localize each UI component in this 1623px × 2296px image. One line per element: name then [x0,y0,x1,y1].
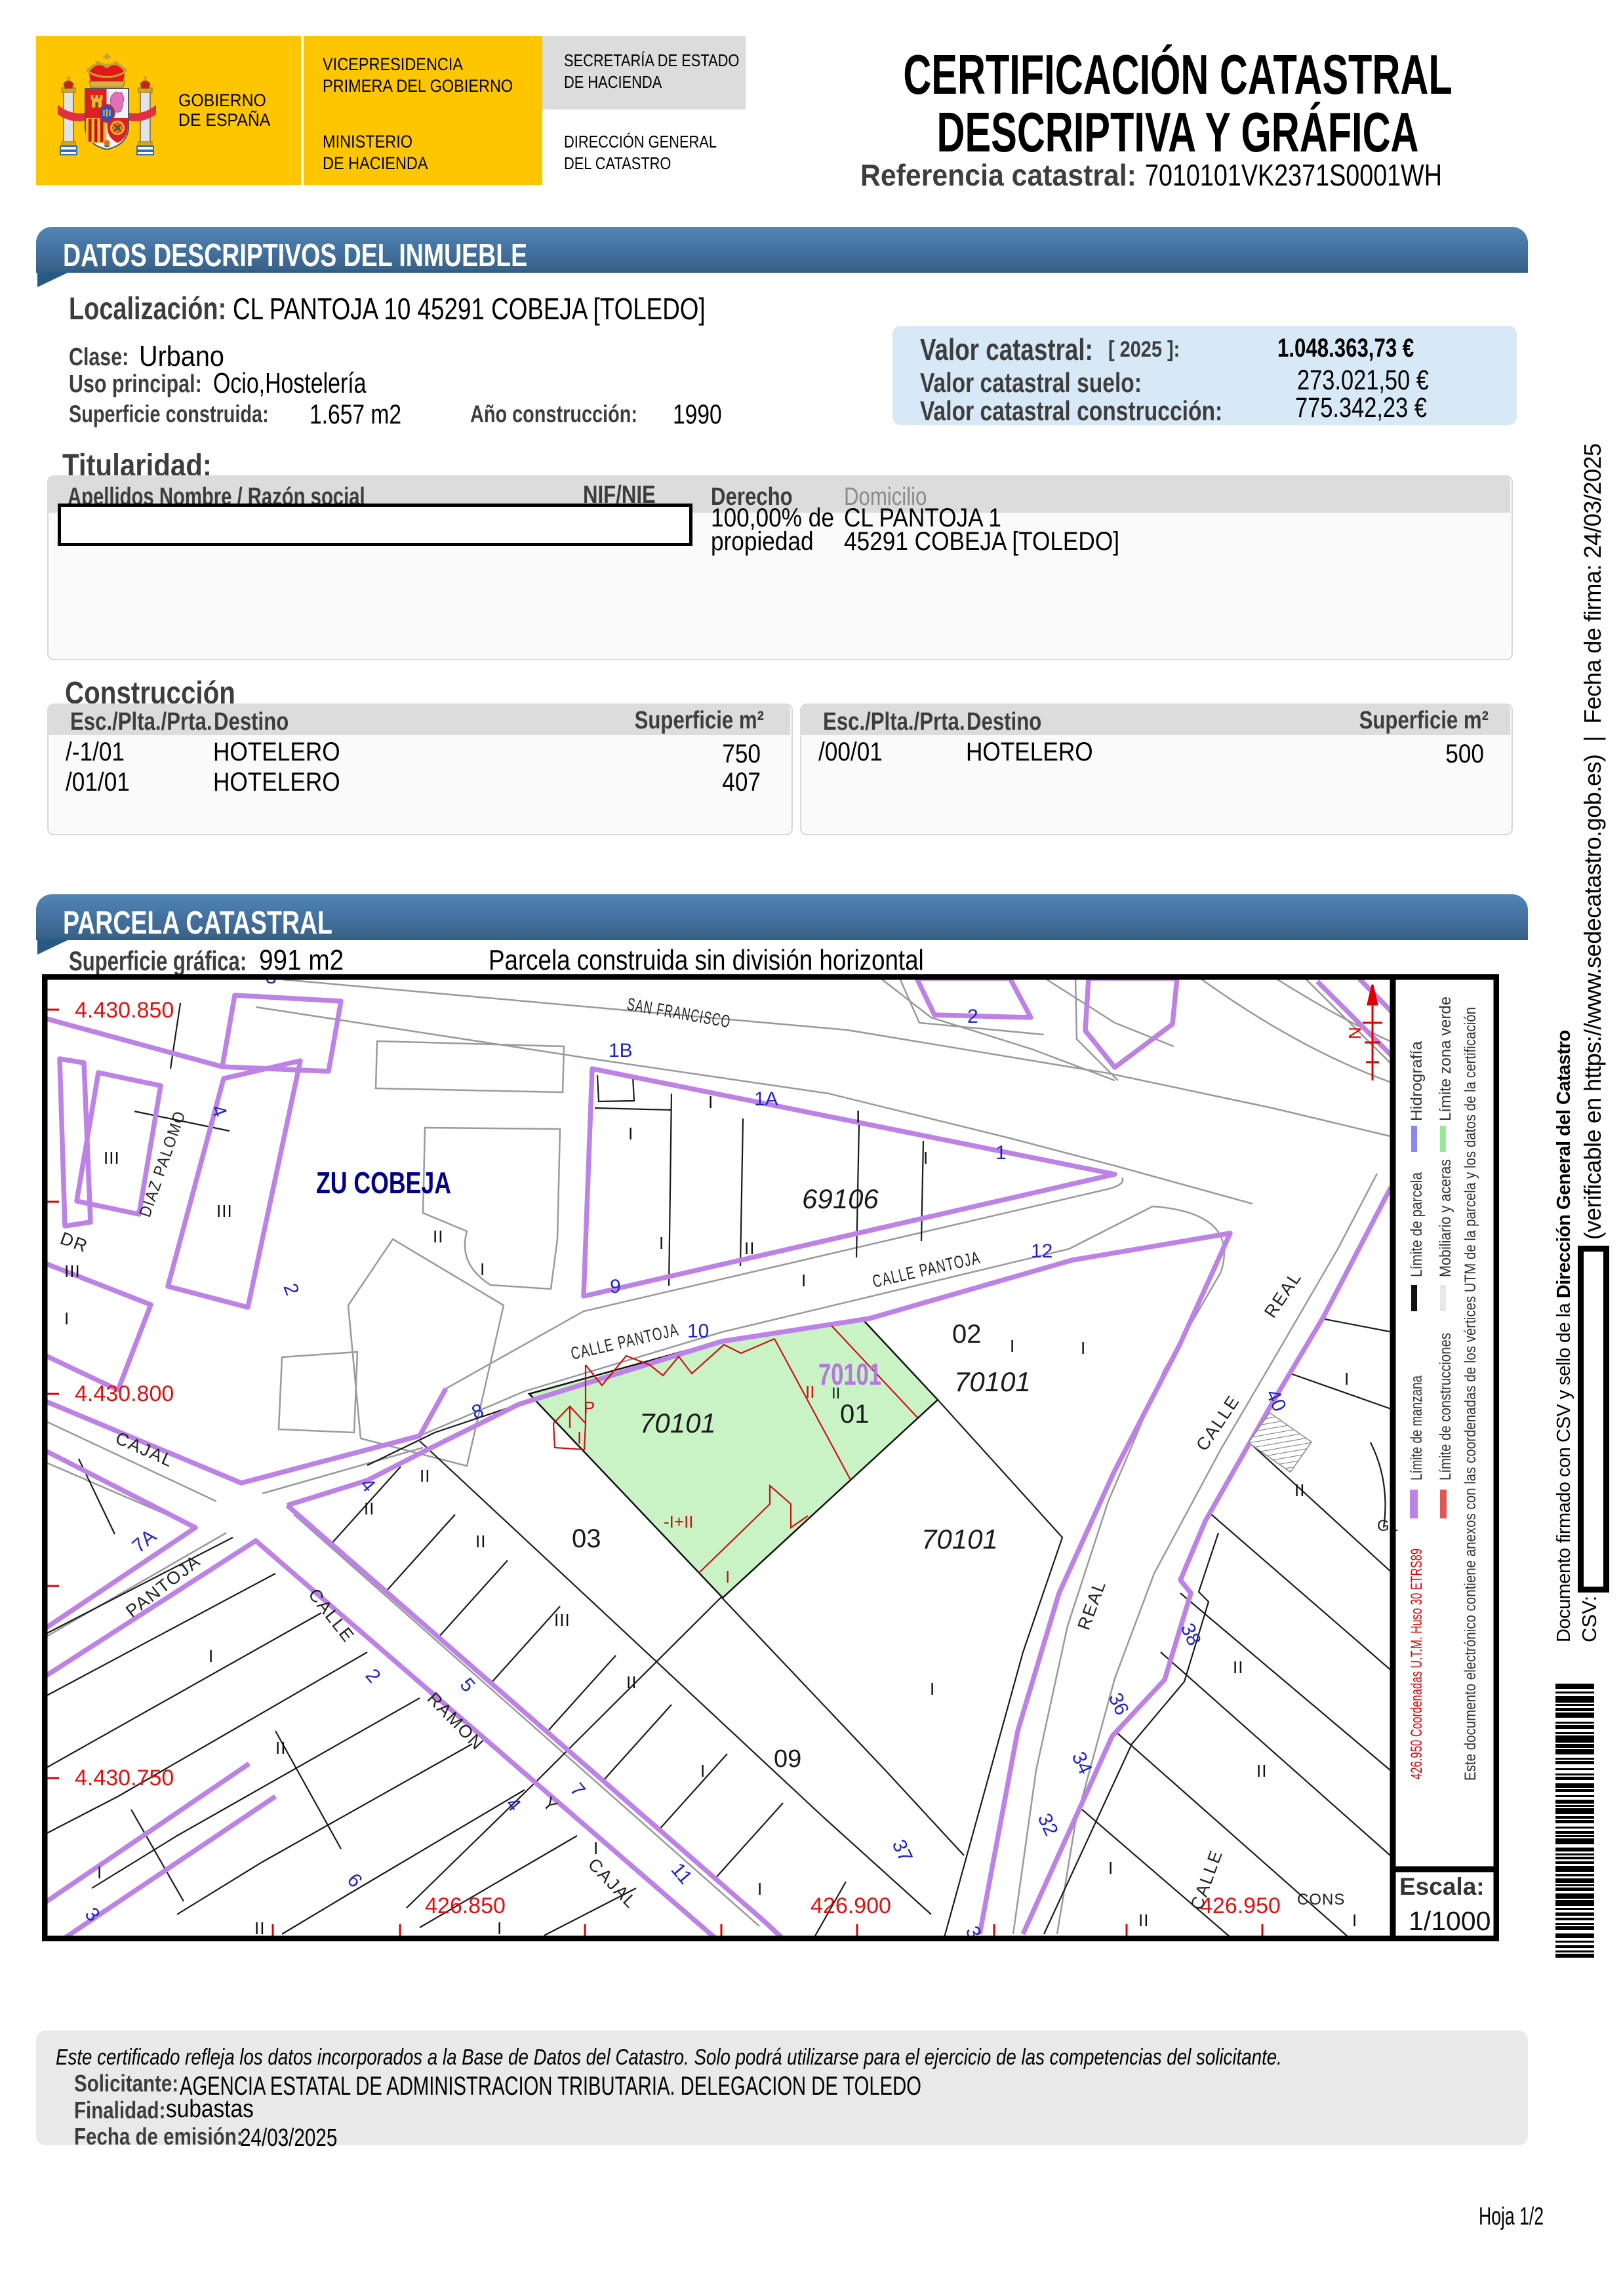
svg-text:1: 1 [995,1142,1007,1164]
svg-text:III: III [64,1261,81,1281]
svg-text:1A: 1A [754,1088,778,1110]
svg-text:I: I [1081,1338,1086,1358]
svg-text:426.850: 426.850 [425,1893,506,1918]
svg-text:4.430.800: 4.430.800 [75,1381,174,1406]
svg-text:Hidrografía: Hidrografía [1408,1040,1426,1121]
svg-text:I: I [577,1428,582,1448]
svg-text:4.430.850: 4.430.850 [75,998,174,1023]
svg-text:I: I [97,1863,102,1882]
svg-text:I: I [856,1107,861,1126]
svg-text:P: P [584,1398,595,1417]
svg-text:II: II [1294,1480,1305,1500]
svg-text:II: II [420,1466,430,1486]
svg-text:I: I [801,1271,807,1290]
svg-text:II: II [275,1738,286,1758]
svg-text:I: I [1344,1369,1350,1389]
svg-text:II: II [475,1532,486,1551]
svg-text:II: II [832,1385,840,1402]
svg-text:9: 9 [610,1276,621,1297]
svg-text:Límite de construcciones: Límite de construcciones [1437,1333,1454,1480]
svg-text:Mobiliario y aceras: Mobiliario y aceras [1437,1159,1454,1277]
svg-text:Escala:: Escala: [1399,1873,1485,1900]
svg-text:09: 09 [774,1745,801,1773]
svg-text:Límite de parcela: Límite de parcela [1408,1172,1426,1277]
svg-text:I: I [930,1679,935,1699]
svg-text:I: I [1010,1336,1015,1356]
svg-text:Este documento electrónico con: Este documento electrónico contiene anex… [1462,1007,1479,1781]
svg-text:12: 12 [1031,1240,1052,1262]
svg-text:426.950: 426.950 [1200,1893,1281,1918]
svg-text:70101: 70101 [921,1524,998,1554]
svg-text:II: II [1233,1657,1243,1677]
svg-text:I: I [628,1124,633,1143]
svg-text:I: I [923,1148,929,1168]
svg-text:-I+II: -I+II [664,1512,694,1532]
svg-text:II: II [364,1499,374,1518]
svg-text:I: I [593,1838,599,1858]
svg-text:10: 10 [687,1320,709,1342]
svg-text:70101: 70101 [954,1366,1031,1397]
svg-text:I: I [209,1646,214,1666]
svg-text:I: I [64,1309,70,1328]
svg-text:I: I [497,1918,502,1938]
svg-text:1/1000: 1/1000 [1409,1906,1491,1936]
svg-text:02: 02 [952,1320,982,1349]
svg-text:CONS: CONS [1297,1891,1345,1909]
svg-text:I: I [700,1761,706,1781]
svg-text:2: 2 [967,1006,978,1027]
svg-text:Límite de manzana: Límite de manzana [1408,1375,1426,1480]
svg-text:4.430.750: 4.430.750 [75,1766,174,1791]
svg-text:I: I [1352,1910,1357,1930]
svg-text:I: I [480,1259,485,1279]
svg-text:III: III [104,1148,120,1168]
svg-text:II: II [1138,1910,1149,1930]
svg-text:426.950 Coordenadas U.T.M. Hus: 426.950 Coordenadas U.T.M. Huso 30 ETRS8… [1408,1549,1426,1779]
svg-text:I: I [725,1567,730,1587]
svg-text:03: 03 [572,1524,601,1553]
svg-text:I: I [757,1879,763,1899]
svg-text:01: 01 [840,1400,870,1429]
svg-text:I: I [1108,1858,1113,1878]
svg-text:III: III [216,1201,233,1221]
svg-text:1B: 1B [609,1040,633,1061]
svg-text:II: II [744,1238,755,1258]
svg-text:426.900: 426.900 [811,1893,891,1918]
svg-text:II: II [254,1918,265,1938]
svg-text:I: I [659,1233,664,1253]
svg-text:II: II [433,1227,443,1246]
svg-text:69106: 69106 [802,1183,879,1214]
svg-text:70101: 70101 [818,1357,881,1391]
svg-text:I: I [708,1092,713,1112]
svg-text:II: II [626,1673,637,1692]
svg-text:II: II [1256,1761,1267,1781]
svg-text:ZU COBEJA: ZU COBEJA [316,1166,451,1200]
svg-text:N: N [1345,1027,1365,1039]
svg-text:III: III [554,1610,571,1630]
svg-text:70101: 70101 [639,1408,716,1438]
svg-text:II: II [805,1382,814,1402]
svg-text:Límite zona verde: Límite zona verde [1437,997,1454,1121]
